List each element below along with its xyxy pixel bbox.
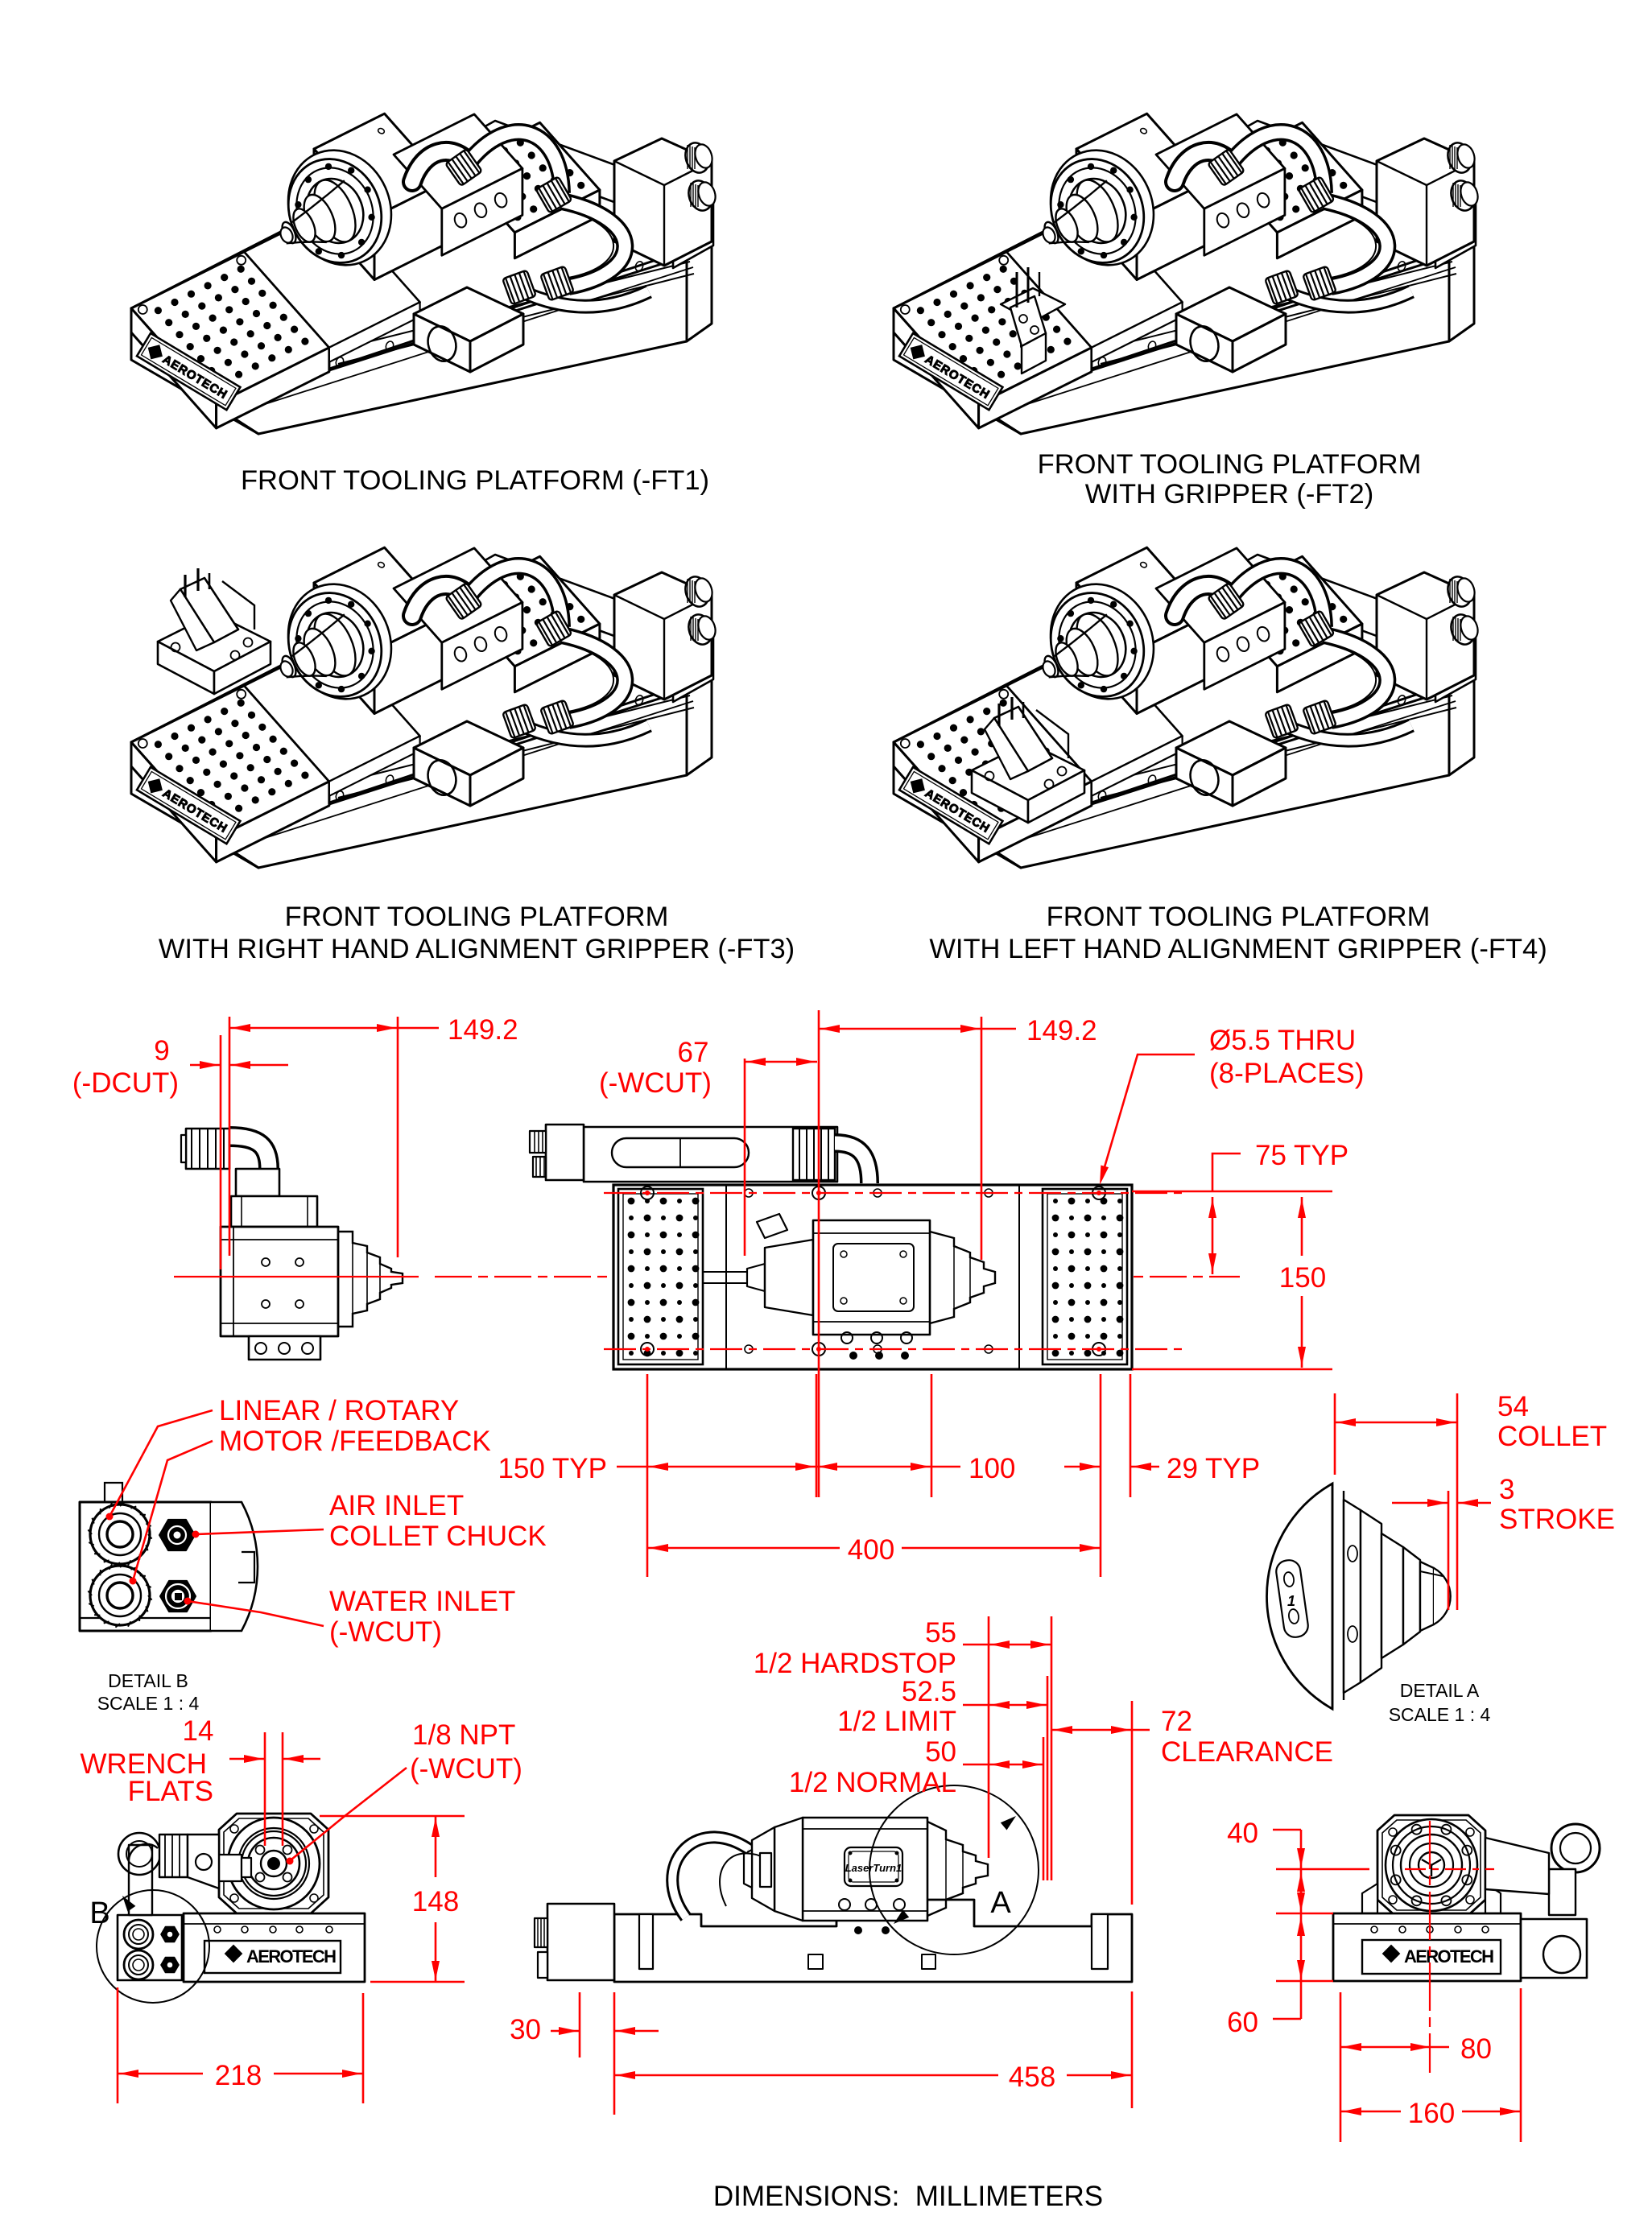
svg-text:60: 60 (1227, 2007, 1258, 2038)
svg-text:50: 50 (925, 1736, 956, 1768)
svg-text:AEROTECH: AEROTECH (246, 1946, 337, 1967)
svg-text:67: 67 (678, 1037, 709, 1068)
svg-text:FRONT TOOLING PLATFORM (-FT1): FRONT TOOLING PLATFORM (-FT1) (241, 465, 709, 496)
svg-text:160: 160 (1408, 2098, 1455, 2129)
svg-text:WITH LEFT HAND ALIGNMENT GRIPP: WITH LEFT HAND ALIGNMENT GRIPPER (-FT4) (929, 934, 1547, 964)
svg-text:DETAIL A: DETAIL A (1400, 1680, 1480, 1701)
svg-text:LINEAR / ROTARY: LINEAR / ROTARY (219, 1395, 459, 1426)
svg-text:75 TYP: 75 TYP (1255, 1140, 1348, 1171)
svg-text:30: 30 (510, 2014, 541, 2045)
svg-text:72: 72 (1161, 1706, 1192, 1737)
svg-text:29 TYP: 29 TYP (1167, 1453, 1260, 1484)
svg-text:SCALE 1 : 4: SCALE 1 : 4 (1389, 1704, 1491, 1725)
svg-text:DETAIL B: DETAIL B (108, 1670, 188, 1691)
svg-text:54: 54 (1497, 1391, 1529, 1422)
svg-text:1/2 NORMAL: 1/2 NORMAL (789, 1767, 956, 1798)
svg-text:WITH RIGHT HAND ALIGNMENT GRIP: WITH RIGHT HAND ALIGNMENT GRIPPER (-FT3) (159, 934, 795, 964)
svg-text:(-WCUT): (-WCUT) (329, 1616, 442, 1648)
svg-text:FLATS: FLATS (128, 1776, 213, 1807)
svg-text:WATER INLET: WATER INLET (329, 1586, 515, 1617)
svg-text:FRONT TOOLING PLATFORM: FRONT TOOLING PLATFORM (285, 902, 669, 932)
svg-text:458: 458 (1009, 2062, 1055, 2093)
svg-text:1/2 LIMIT: 1/2 LIMIT (837, 1706, 956, 1737)
svg-text:150: 150 (1279, 1262, 1326, 1294)
svg-text:COLLET: COLLET (1497, 1421, 1607, 1452)
svg-text:(8-PLACES): (8-PLACES) (1209, 1058, 1365, 1089)
svg-text:148: 148 (412, 1886, 459, 1917)
svg-text:B: B (89, 1896, 109, 1930)
svg-text:1/8 NPT: 1/8 NPT (412, 1719, 515, 1751)
svg-text:9: 9 (154, 1035, 169, 1067)
svg-text:STROKE: STROKE (1499, 1504, 1615, 1535)
svg-text:149.2: 149.2 (1026, 1015, 1097, 1046)
svg-text:55: 55 (925, 1617, 956, 1649)
svg-text:AEROTECH: AEROTECH (1404, 1946, 1494, 1967)
svg-text:218: 218 (215, 2060, 262, 2091)
svg-text:150 TYP: 150 TYP (498, 1453, 607, 1484)
svg-text:Ø5.5 THRU: Ø5.5 THRU (1209, 1025, 1356, 1056)
svg-text:AIR INLET: AIR INLET (329, 1490, 464, 1521)
svg-text:A: A (990, 1886, 1011, 1920)
svg-text:1: 1 (1287, 1593, 1295, 1609)
svg-text:(-WCUT): (-WCUT) (599, 1067, 712, 1099)
svg-text:52.5: 52.5 (902, 1676, 956, 1707)
svg-text:14: 14 (183, 1715, 214, 1747)
svg-text:FRONT TOOLING PLATFORM: FRONT TOOLING PLATFORM (1038, 449, 1422, 480)
svg-text:WITH GRIPPER (-FT2): WITH GRIPPER (-FT2) (1085, 479, 1373, 510)
svg-text:3: 3 (1499, 1474, 1514, 1505)
svg-text:149.2: 149.2 (448, 1014, 518, 1046)
svg-text:40: 40 (1227, 1818, 1258, 1849)
svg-text:DIMENSIONS: MILLIMETERS: DIMENSIONS: MILLIMETERS (713, 2181, 1103, 2212)
svg-text:COLLET CHUCK: COLLET CHUCK (329, 1521, 547, 1552)
svg-text:SCALE 1 : 4: SCALE 1 : 4 (97, 1693, 200, 1714)
svg-text:(-WCUT): (-WCUT) (410, 1753, 522, 1785)
svg-text:LaserTurn1: LaserTurn1 (845, 1862, 902, 1874)
svg-text:MOTOR /FEEDBACK: MOTOR /FEEDBACK (219, 1426, 491, 1457)
svg-text:100: 100 (968, 1453, 1015, 1484)
svg-text:80: 80 (1460, 2033, 1492, 2065)
svg-text:400: 400 (848, 1534, 894, 1566)
svg-text:1/2 HARDSTOP: 1/2 HARDSTOP (754, 1648, 956, 1679)
svg-text:(-DCUT): (-DCUT) (72, 1067, 179, 1099)
svg-text:FRONT TOOLING PLATFORM: FRONT TOOLING PLATFORM (1047, 902, 1431, 932)
svg-text:CLEARANCE: CLEARANCE (1161, 1736, 1333, 1768)
